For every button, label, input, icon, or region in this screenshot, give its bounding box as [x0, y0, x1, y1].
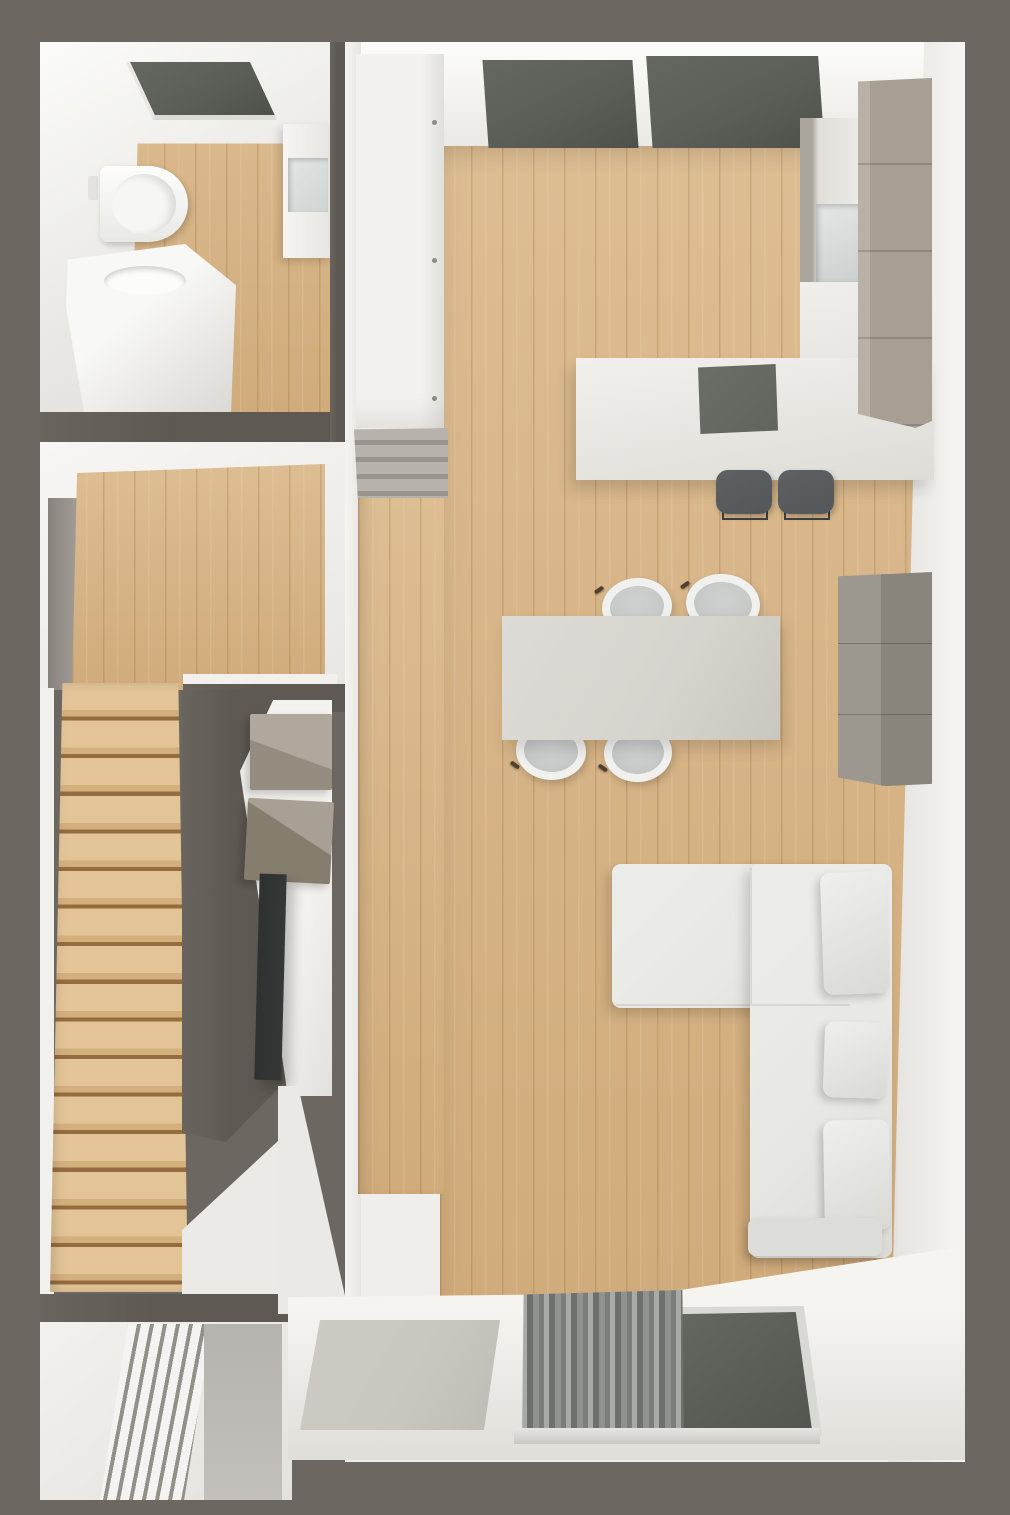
toilet-seat	[112, 174, 176, 234]
sideboard	[838, 572, 932, 786]
entry-wall	[40, 1294, 292, 1322]
appliance-niche	[816, 204, 860, 282]
window-pane-right	[646, 56, 824, 148]
hallway-floor	[72, 464, 325, 690]
wall-box-1	[250, 714, 332, 790]
wardrobe-handle-3	[432, 396, 437, 401]
bathroom-roof-window	[126, 62, 277, 120]
sofa-cushion-2	[823, 1021, 890, 1099]
toilet-flush-plate	[88, 176, 98, 200]
sofa-seam-vertical	[750, 868, 752, 1004]
radiator-bench	[354, 428, 448, 498]
living-double-window	[478, 54, 833, 152]
entry-floor	[204, 1324, 282, 1500]
tv-wall-bottom-wedge	[278, 1086, 345, 1314]
doormat	[300, 1320, 500, 1430]
tv-screen	[254, 874, 286, 1081]
curtain	[522, 1290, 684, 1438]
wall-box-2	[244, 798, 334, 884]
lower-wall-wedge	[182, 1128, 292, 1304]
wardrobe-handle-1	[432, 120, 437, 125]
sofa-armrest	[748, 1218, 882, 1256]
wardrobe-handle-2	[432, 258, 437, 263]
washbasin	[104, 266, 186, 296]
sofa-cushion-1	[820, 871, 890, 995]
sofa-cushion-3	[823, 1119, 891, 1230]
staircase	[50, 683, 188, 1292]
living-floor-left	[358, 494, 444, 1194]
tall-wardrobe	[356, 54, 444, 428]
kitchen-tall-cabinet	[858, 78, 932, 428]
cooktop	[698, 364, 778, 434]
bar-stool-2	[778, 470, 834, 514]
dining-table	[502, 616, 780, 740]
window-pane-left	[482, 60, 638, 148]
sofa-seam-horizontal	[616, 1004, 850, 1006]
door-sill	[514, 1428, 820, 1444]
floorplan-scene	[0, 0, 1010, 1515]
bathroom-cabinet-recess	[288, 158, 328, 212]
bar-stool-1	[716, 470, 772, 514]
wall-bathroom-hall	[40, 412, 345, 442]
